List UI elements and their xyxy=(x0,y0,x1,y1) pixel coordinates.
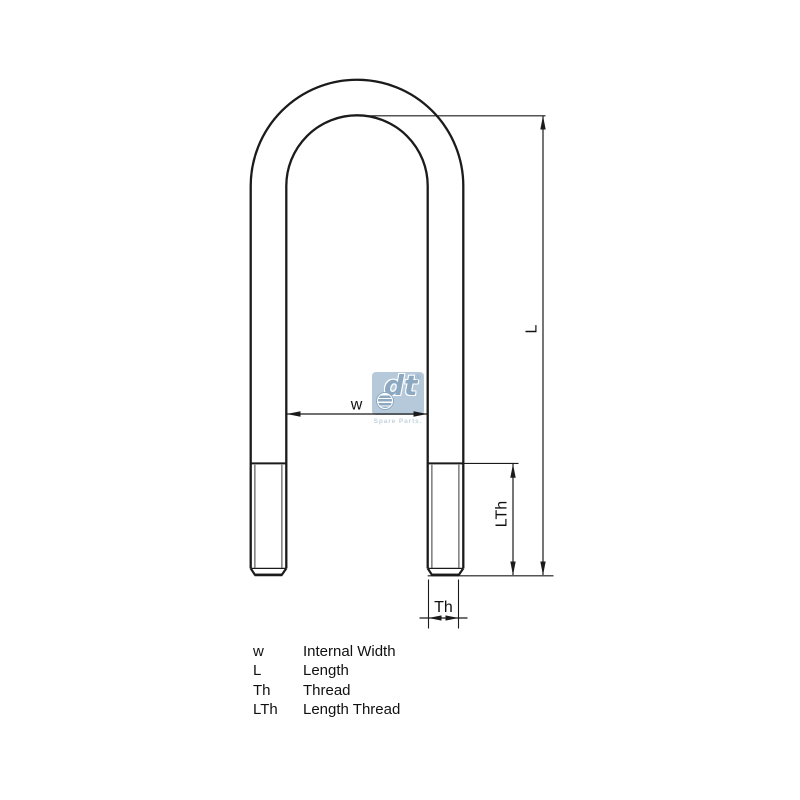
internal-width-right-arrowhead xyxy=(414,411,428,416)
legend-row-length-thread: LThLength Thread xyxy=(253,700,400,719)
legend-abbr: w xyxy=(253,642,303,661)
legend-desc: Length xyxy=(303,661,349,680)
length-bottom-arrowhead xyxy=(540,562,545,576)
left-thread-root-lines xyxy=(255,465,282,568)
internal-width-left-arrowhead xyxy=(287,411,301,416)
diagram-canvas: dt ® Spare Parts. xyxy=(0,0,800,800)
u-bolt-inner-outline xyxy=(286,115,427,568)
thread-length-bottom-arrowhead xyxy=(510,562,515,576)
length-top-arrowhead xyxy=(540,116,545,130)
legend-abbr: Th xyxy=(253,681,303,700)
legend-desc: Internal Width xyxy=(303,642,396,661)
legend-row-length: LLength xyxy=(253,661,400,680)
legend-desc: Length Thread xyxy=(303,700,400,719)
legend: wInternal Width LLength ThThread LThLeng… xyxy=(253,642,400,720)
thread-left-arrowhead xyxy=(429,615,442,620)
legend-abbr: LTh xyxy=(253,700,303,719)
internal-width-label: w xyxy=(350,397,363,414)
legend-row-internal-width: wInternal Width xyxy=(253,642,400,661)
legend-desc: Thread xyxy=(303,681,351,700)
thread-right-arrowhead xyxy=(446,615,459,620)
right-thread-root-lines xyxy=(432,465,459,568)
legend-abbr: L xyxy=(253,661,303,680)
thread-label: Th xyxy=(434,599,453,616)
legend-row-thread: ThThread xyxy=(253,681,400,700)
thread-length-top-arrowhead xyxy=(510,464,515,478)
length-label: L xyxy=(524,324,541,333)
thread-length-label: LTh xyxy=(494,501,511,527)
